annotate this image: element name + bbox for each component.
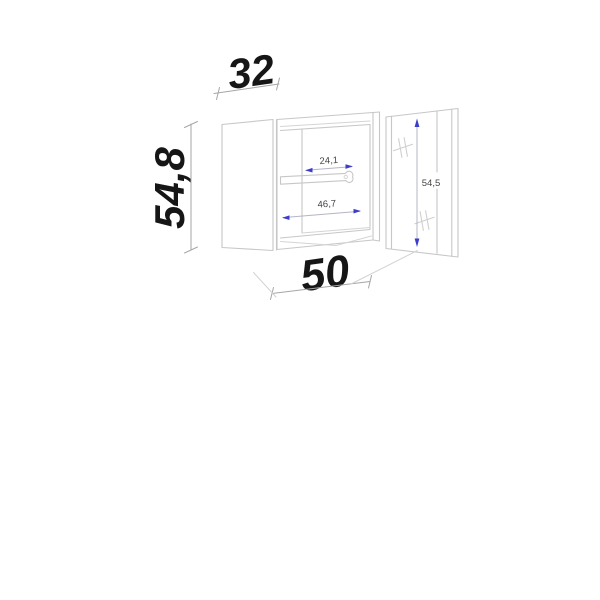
cabinet-front-frame: [277, 112, 380, 250]
dimension-bottom-width: 50: [254, 246, 418, 301]
dimension-interior-upper: 24,1: [305, 155, 353, 173]
hinge-bottom-icon: [413, 209, 436, 231]
dimension-top-width-label: 32: [225, 45, 278, 98]
dim-arrow-left-icon: [305, 168, 313, 173]
shelf-slab: [281, 171, 354, 184]
bottom-panel-front-edge: [281, 236, 372, 246]
dim-arrow-right-icon: [346, 164, 354, 169]
dimension-door-height: 54,5: [415, 119, 445, 248]
dim-arrow-right-icon: [354, 209, 362, 214]
dim-arrow-left-icon: [282, 215, 290, 220]
dimension-interior-lower-line: [283, 211, 360, 217]
dimension-interior-upper-line: [306, 167, 352, 171]
dim-arrow-down-icon: [415, 239, 420, 248]
dimension-top-width: 32: [214, 45, 280, 99]
dim-arrow-up-icon: [415, 119, 420, 128]
dimension-bottom-extension-right: [350, 251, 418, 285]
dimension-interior-upper-label: 24,1: [319, 155, 338, 167]
dimension-interior-lower-label: 46,7: [317, 198, 336, 210]
dimension-left-height: 54,8: [146, 122, 198, 254]
cabinet-left-panel: [222, 120, 277, 251]
right-side-edge: [373, 112, 380, 241]
shelf-edge-detail: [344, 175, 347, 178]
cabinet-shelf: [281, 171, 354, 184]
dimension-bottom-width-label: 50: [297, 246, 353, 301]
dimension-bottom-extension-left: [254, 273, 277, 298]
dimension-left-height-label: 54,8: [146, 146, 193, 228]
cabinet-technical-drawing-page: 32 54,8 50 24,1: [0, 0, 600, 600]
front-frame-outline: [277, 113, 373, 250]
dimension-interior-lower: 46,7: [282, 198, 361, 220]
dimension-door-height-label: 54,5: [422, 178, 441, 189]
hinge-top-icon: [392, 136, 415, 158]
left-panel-outline: [222, 120, 273, 251]
cabinet-technical-drawing: 32 54,8 50 24,1: [0, 0, 600, 600]
